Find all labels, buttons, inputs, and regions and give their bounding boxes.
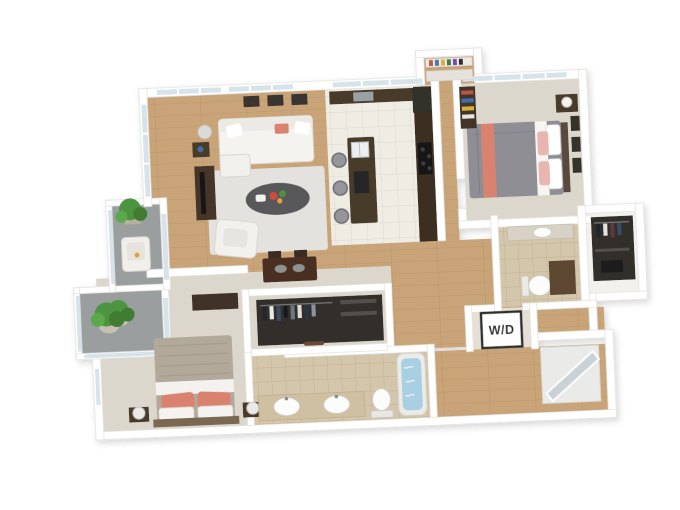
bathroom-cabinet (549, 260, 576, 295)
garment (596, 224, 601, 237)
books (461, 90, 473, 95)
picture-frame (267, 95, 283, 107)
table-lamp (247, 402, 260, 415)
shower-room (540, 345, 600, 403)
garment (304, 305, 309, 320)
bar-stool (333, 181, 348, 196)
garment (290, 305, 295, 319)
floor-plan-image: W/D (0, 0, 680, 510)
window-mullion (271, 85, 273, 90)
window-mullion (199, 88, 201, 93)
floor-lamp (197, 125, 212, 140)
pantry-item (441, 59, 445, 65)
toilet-tank (521, 276, 529, 296)
chair-cushion (126, 242, 145, 261)
wall-segment (415, 48, 481, 58)
bookshelf (459, 86, 477, 129)
garment (311, 304, 316, 316)
laundry-closet: W/D (481, 311, 522, 348)
picture-frame (572, 158, 582, 173)
sofa-pillow-coral (274, 123, 288, 134)
garment (297, 305, 302, 318)
washer-dryer-label: W/D (488, 323, 514, 338)
window-mullion (493, 75, 495, 80)
window-mullion (249, 86, 251, 91)
garment (610, 223, 615, 237)
bathtub (397, 353, 428, 416)
armchair-cushion (223, 228, 249, 248)
pantry-item (453, 59, 457, 65)
dining-table (262, 256, 317, 282)
sink-divider (359, 142, 360, 157)
magazine (256, 194, 266, 201)
garment (269, 306, 274, 319)
dresser (192, 293, 239, 311)
bar-stool (332, 153, 347, 168)
window-mullion (177, 89, 179, 94)
window-mullion (361, 81, 363, 86)
garment (603, 224, 608, 236)
window-mullion (144, 162, 149, 164)
storage-box (601, 260, 624, 273)
side-table (192, 142, 210, 158)
tub-water (401, 358, 423, 411)
garment (262, 306, 267, 320)
garment (617, 223, 622, 235)
floor-plan-svg: W/D (0, 0, 680, 510)
books (462, 106, 474, 111)
sofa-pillow (294, 121, 310, 135)
picture-frame (291, 94, 307, 106)
table-lamp (133, 407, 146, 420)
bed (467, 120, 571, 198)
pillow-pink (537, 131, 549, 155)
hall-floor-left (390, 257, 442, 350)
pantry-item (459, 59, 463, 65)
toilet-bowl (528, 275, 551, 296)
picture-frame (570, 116, 580, 131)
closet-2 (591, 215, 636, 281)
window-mullion (389, 80, 391, 85)
garment (276, 306, 281, 321)
bed (150, 335, 240, 428)
kitchen-island (347, 137, 378, 224)
pantry-item (447, 59, 451, 65)
apartment-plan: W/D (64, 41, 653, 441)
books (462, 98, 474, 103)
toilet (521, 275, 551, 296)
pantry-item (429, 60, 433, 66)
refrigerator (412, 88, 432, 113)
pillow-pink (538, 161, 550, 185)
window-mullion (520, 74, 522, 79)
books (462, 114, 474, 119)
picture-frame (571, 137, 581, 152)
tv-stand (194, 166, 216, 221)
window-mullion (544, 73, 546, 78)
pantry-shelf (426, 69, 472, 81)
island-cooktop (354, 171, 370, 194)
window-mullion (143, 132, 148, 134)
bar-stool (334, 209, 349, 224)
picture-frame (243, 96, 259, 108)
microwave (353, 92, 373, 102)
toilet-tank (371, 410, 393, 418)
garment (283, 306, 288, 318)
table-lamp (562, 97, 572, 107)
pantry-item (435, 60, 439, 66)
sofa-chaise (220, 154, 251, 177)
